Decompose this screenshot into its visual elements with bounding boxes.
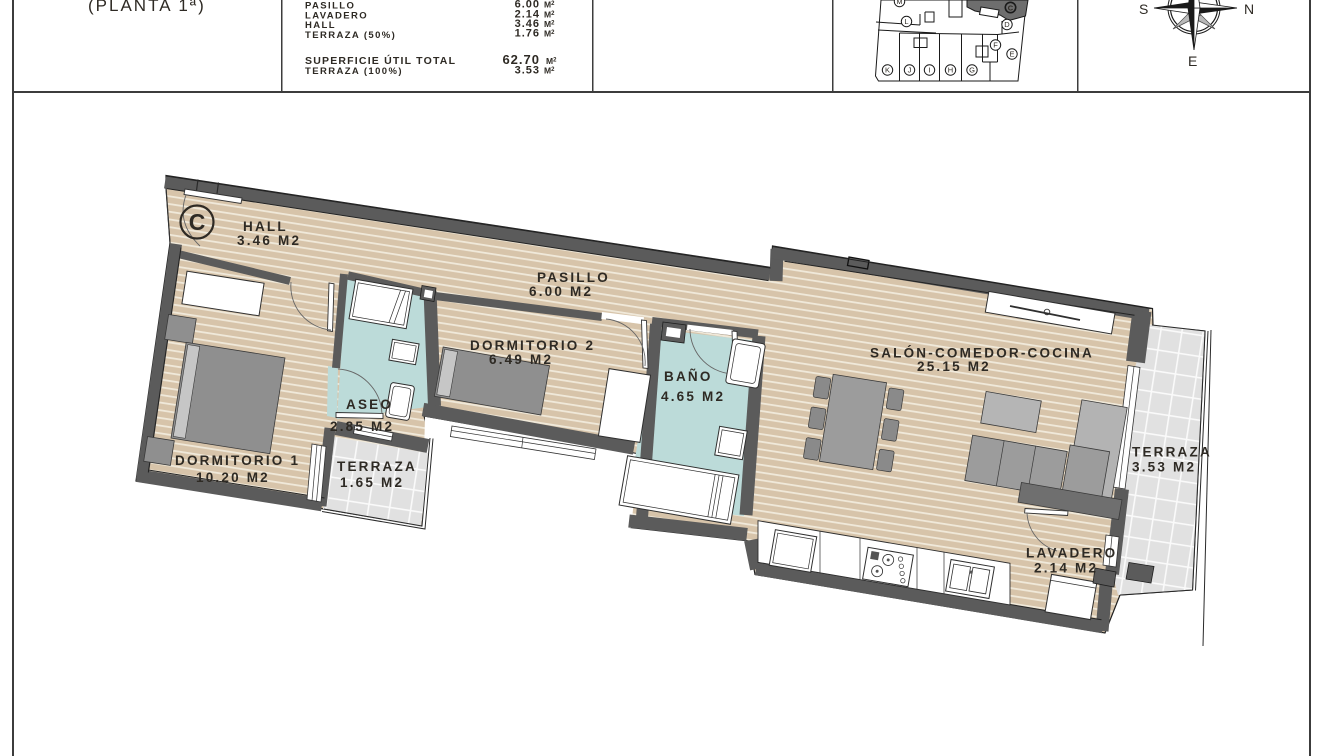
svg-text:C: C [1008,3,1014,12]
svg-text:G: G [969,66,975,75]
svg-text:N: N [1244,1,1254,17]
svg-text:TERRAZA (100%): TERRAZA (100%) [305,66,403,77]
svg-text:S: S [1139,1,1148,17]
svg-text:3.53: 3.53 [515,65,540,77]
svg-text:1.65 M2: 1.65 M2 [340,475,404,490]
svg-text:ASEO: ASEO [346,397,393,412]
svg-text:6.49 M2: 6.49 M2 [489,352,553,367]
svg-text:D: D [1004,20,1010,29]
svg-text:LAVADERO: LAVADERO [1026,546,1117,561]
svg-text:25.15 M2: 25.15 M2 [917,359,991,374]
svg-text:1.76: 1.76 [515,28,540,40]
svg-text:K: K [885,66,890,75]
svg-text:4.65 M2: 4.65 M2 [661,389,725,404]
svg-text:3.46 M2: 3.46 M2 [237,233,301,248]
svg-text:(PLANTA 1ª): (PLANTA 1ª) [88,0,206,15]
svg-text:E: E [1188,53,1197,69]
svg-text:C: C [189,209,206,235]
svg-text:F: F [993,41,998,50]
svg-text:I: I [928,66,930,75]
svg-text:M: M [896,0,902,6]
svg-text:2.85 M2: 2.85 M2 [330,419,394,434]
svg-text:DORMITORIO 1: DORMITORIO 1 [175,453,300,468]
svg-text:J: J [908,66,912,75]
svg-text:TERRAZA: TERRAZA [1132,445,1212,460]
svg-text:2.14 M2: 2.14 M2 [1034,561,1098,576]
svg-text:TERRAZA (50%): TERRAZA (50%) [305,30,396,41]
svg-text:L: L [904,17,908,26]
svg-text:TERRAZA: TERRAZA [337,459,417,474]
svg-text:6.00 M2: 6.00 M2 [529,284,593,299]
svg-text:BAÑO: BAÑO [664,369,713,384]
svg-text:10.20 M2: 10.20 M2 [196,470,270,485]
svg-text:H: H [948,66,953,75]
svg-text:E: E [1009,50,1014,59]
svg-text:DORMITORIO 2: DORMITORIO 2 [470,338,595,353]
svg-text:3.53 M2: 3.53 M2 [1132,460,1196,475]
svg-text:HALL: HALL [243,219,288,234]
svg-text:PASILLO: PASILLO [537,270,610,285]
